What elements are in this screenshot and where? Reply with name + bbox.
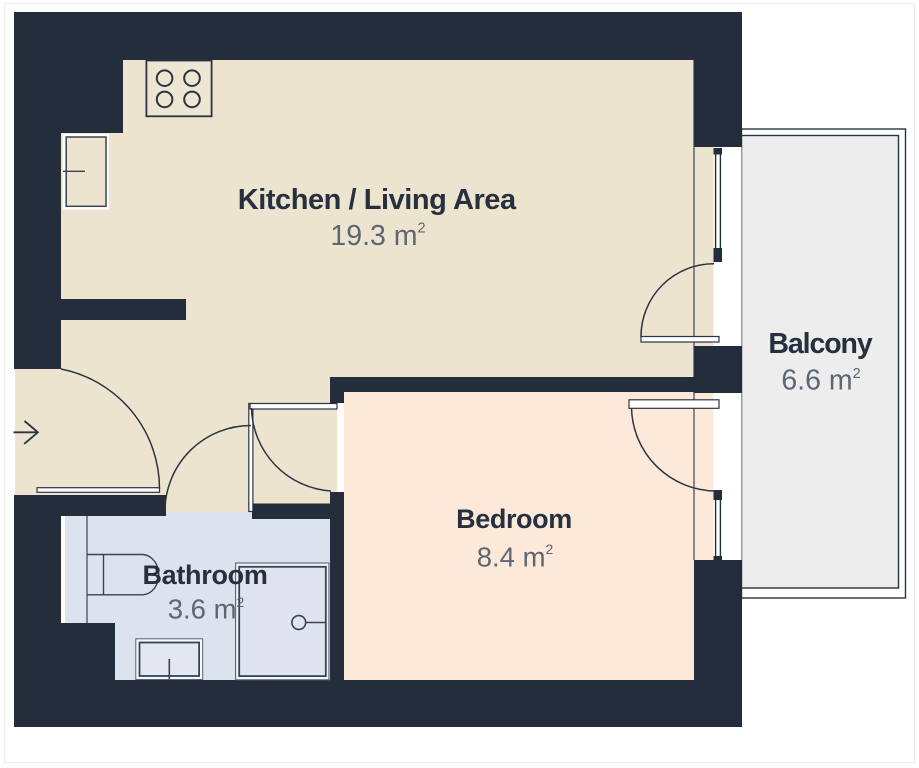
svg-text:6.6 m2: 6.6 m2 — [781, 365, 860, 397]
svg-text:Bedroom: Bedroom — [456, 504, 572, 534]
svg-text:3.6 m2: 3.6 m2 — [168, 594, 245, 625]
svg-text:Kitchen / Living Area: Kitchen / Living Area — [238, 184, 517, 216]
svg-text:Balcony: Balcony — [768, 328, 872, 360]
svg-text:8.4 m2: 8.4 m2 — [477, 541, 554, 573]
svg-text:Bathroom: Bathroom — [142, 560, 267, 590]
svg-text:19.3 m2: 19.3 m2 — [330, 220, 425, 252]
